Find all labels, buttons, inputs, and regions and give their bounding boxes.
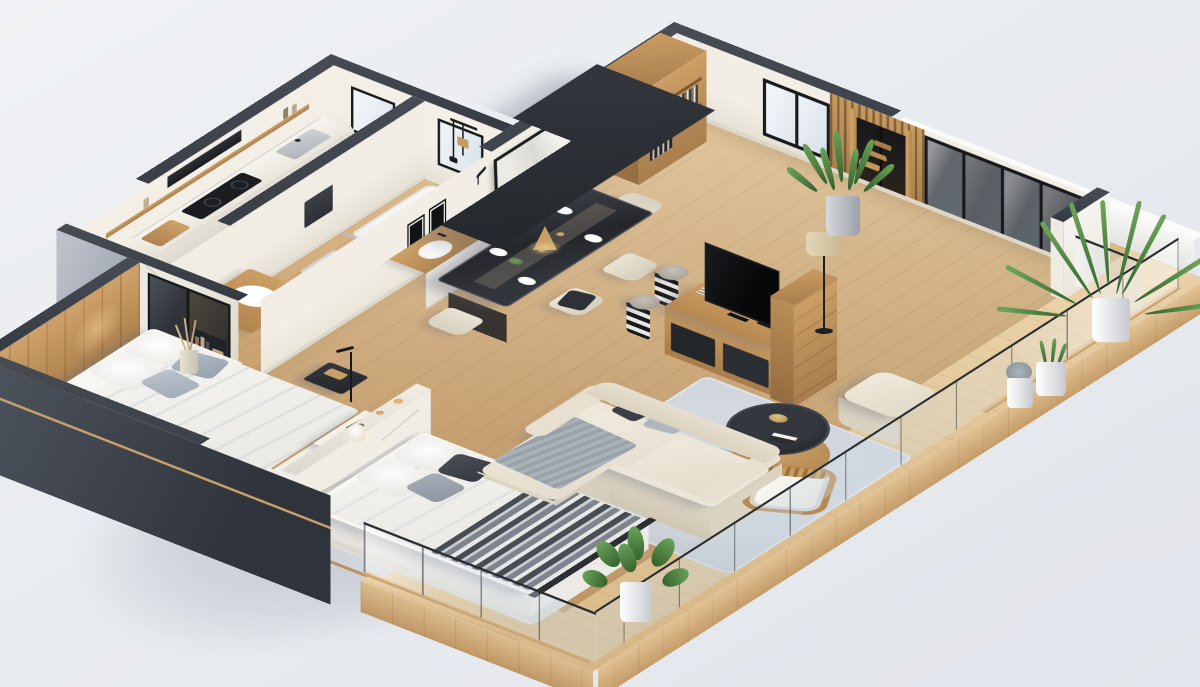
deck-planter <box>1002 362 1038 412</box>
reading-lamp-pole <box>350 352 352 402</box>
palm-pot <box>1092 298 1130 342</box>
pendant-glow <box>527 240 563 256</box>
indoor-plant <box>800 120 890 270</box>
pendant-cord <box>544 158 546 228</box>
sprig <box>189 320 196 350</box>
floor-lamp-base <box>815 328 833 334</box>
monstera-plant <box>590 520 680 660</box>
monstera-pot <box>620 582 652 622</box>
stair-jamb <box>906 129 912 202</box>
dried-flower-vase <box>168 318 208 378</box>
scene-stage: Photorealistic isometric cutaway 3D rend… <box>0 0 1200 687</box>
indoor-plant-pot <box>826 196 860 236</box>
shower-hose <box>453 120 455 159</box>
oak-column-south <box>770 296 794 407</box>
towel <box>304 184 332 228</box>
ball-lamp <box>348 424 366 442</box>
